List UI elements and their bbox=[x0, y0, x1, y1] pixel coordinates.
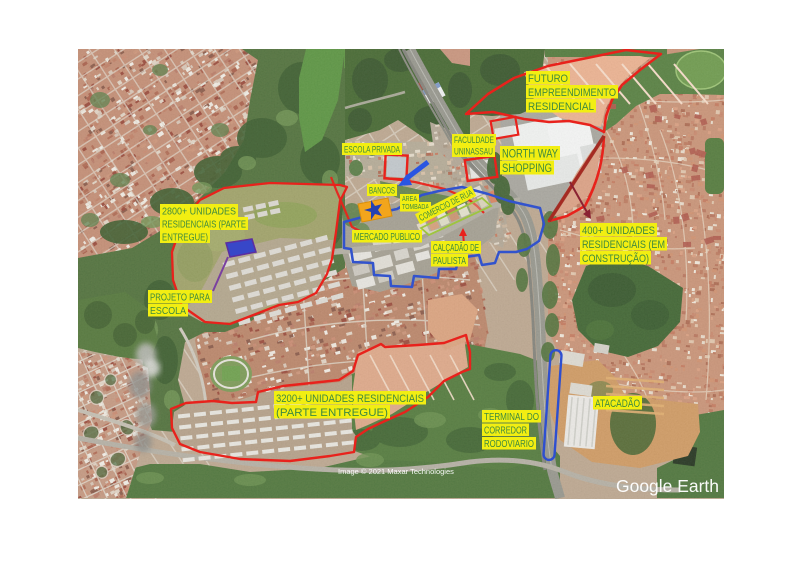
svg-text:SHOPPING: SHOPPING bbox=[502, 163, 552, 175]
svg-text:NORTH WAY: NORTH WAY bbox=[502, 149, 558, 161]
svg-text:ESCOLA PRIVADA: ESCOLA PRIVADA bbox=[344, 145, 400, 156]
svg-text:AREA: AREA bbox=[402, 196, 417, 203]
svg-text:RESIDENCIAL: RESIDENCIAL bbox=[528, 101, 594, 113]
svg-text:BANCOS: BANCOS bbox=[369, 186, 395, 197]
svg-text:UNINASSAU: UNINASSAU bbox=[454, 147, 493, 157]
svg-text:FUTURO: FUTURO bbox=[528, 73, 568, 85]
svg-text:FACULDADE: FACULDADE bbox=[454, 135, 494, 145]
svg-text:EMPREENDIMENTO: EMPREENDIMENTO bbox=[528, 87, 616, 99]
